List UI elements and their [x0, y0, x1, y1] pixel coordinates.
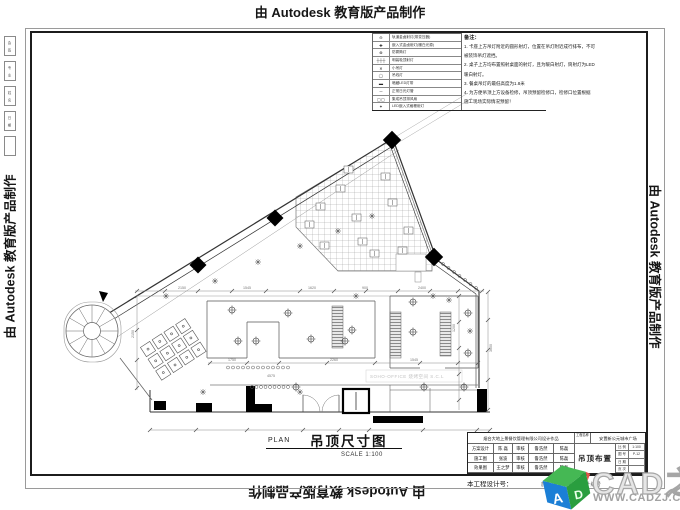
legend-symbol: ▬ [373, 80, 390, 87]
lighting-legend-table: ⊖轨道金卤射灯(带变压器)✚嵌入式金卤射灯(暖白光源)⊗防雾筒灯┼┼┼明装吸顶射… [372, 33, 462, 110]
legend-row: ⊖轨道金卤射灯(带变压器) [373, 34, 461, 42]
legend-label: 轨道金卤射灯(带变压器) [390, 34, 461, 41]
legend-row: ▢▢集成吊顶排风扇 [373, 96, 461, 104]
notes-line: 被装饰吊灯遮挡。 [464, 51, 546, 60]
cadzj-logo-icon: A D [536, 458, 598, 510]
notes-line: 2. 桌子上方均布置照射桌面的射灯，且为暖白射灯，筒射灯为LED [464, 60, 546, 69]
legend-symbol: ─ [373, 88, 390, 95]
legend-row: ◯吊线灯 [373, 72, 461, 80]
legend-symbol: ▢▢ [373, 96, 390, 103]
title-block-company: 烟台大地上景餐饮管理有限公司设计作品 [468, 433, 575, 444]
title-block-cell: 效果图 [468, 463, 494, 473]
legend-symbol: ✦ [373, 103, 390, 110]
signature-strip-cell: 日 期 [4, 111, 16, 131]
notes-line: 施工现场实际情况预留！ [464, 97, 546, 106]
legend-row: ✕小吊灯 [373, 65, 461, 73]
title-block-cell: 鲁浩然 [529, 444, 554, 454]
plan-title: 吊顶尺寸图 [310, 430, 388, 450]
legend-underline [372, 110, 546, 111]
cad-sheet-page: 由 Autodesk 教育版产品制作 由 Autodesk 教育版产品制作 由 … [0, 0, 680, 510]
legend-row: ⊗防雾筒灯 [373, 49, 461, 57]
legend-label: 暗藏LED灯带 [390, 80, 461, 87]
legend-symbol: ⊗ [373, 49, 390, 56]
plan-scale: SCALE 1:100 [341, 452, 383, 458]
meta-value: 1:100 [629, 444, 645, 451]
project-name-label: 工程名称 [575, 433, 591, 444]
legend-row: ─正常日光灯管 [373, 88, 461, 96]
legend-label: 嵌入式金卤射灯(暖白光源) [390, 42, 461, 49]
title-block-cell: 审核 [513, 444, 529, 454]
title-block-row: 施工图张波审核鲁浩然陈磊 [468, 454, 575, 464]
legend-row: ▬暗藏LED灯带 [373, 80, 461, 88]
title-block-cell: 陈磊 [554, 444, 575, 454]
signature-strip-cell: 姓 名 [4, 86, 16, 106]
notes-line: 3. 餐桌吊灯的最低高度为1.8米 [464, 79, 546, 88]
plan-title-rule [266, 448, 402, 449]
legend-label: 正常日光灯管 [390, 88, 461, 95]
notes-title: 备注： [464, 34, 546, 41]
signature-strip-cell [4, 136, 16, 156]
title-block-cell: 方案设计 [468, 444, 494, 454]
signature-strip: 会 签专 业姓 名日 期 [4, 36, 16, 161]
title-block-cell: 陈 磊 [494, 444, 513, 454]
notes-block: 备注： 1. 卡座上方吊灯附近的圆形射灯，位置在吊灯附近成行排布，不可被装饰吊灯… [464, 34, 546, 106]
cadzj-url-text: WWW.CADZJ.COM [593, 492, 680, 504]
edu-banner-top: 由 Autodesk 教育版产品制作 [0, 2, 680, 21]
legend-symbol: ✚ [373, 42, 390, 49]
legend-row: ┼┼┼明装吸顶射灯 [373, 57, 461, 65]
title-block-cell: 王之梦 [494, 463, 513, 473]
title-block-cell: 张波 [494, 454, 513, 464]
legend-label: 明装吸顶射灯 [390, 57, 461, 64]
legend-label: LED嵌入式格栅射灯 [390, 103, 461, 110]
title-block-cell: 施工图 [468, 454, 494, 464]
legend-row: ✚嵌入式金卤射灯(暖白光源) [373, 42, 461, 50]
title-block-meta-row: 比 例1:100 [616, 444, 645, 451]
meta-key: 比 例 [616, 444, 629, 451]
sheet-inner-frame [30, 31, 648, 476]
title-block-cell: 审核 [513, 454, 529, 464]
signature-strip-cell: 专 业 [4, 61, 16, 81]
title-block-cell: 审核 [513, 463, 529, 473]
legend-label: 防雾筒灯 [390, 49, 461, 56]
notes-line: 4. 为方便吊顶上方设备检修，吊顶预留检修口，检修口位置根据 [464, 88, 546, 97]
legend-symbol: ⊖ [373, 34, 390, 41]
signature-strip-cell: 会 签 [4, 36, 16, 56]
legend-symbol: ◯ [373, 72, 390, 79]
legend-label: 小吊灯 [390, 65, 461, 72]
legend-label: 集成吊顶排风扇 [390, 96, 461, 103]
legend-label: 吊线灯 [390, 72, 461, 79]
title-block-cell: 鲁浩然 [529, 454, 554, 464]
design-number-label: 本工程设计号： [467, 478, 513, 488]
notes-line: 暖白射灯。 [464, 70, 546, 79]
project-name: 安置新公元城市广场 [591, 433, 645, 444]
legend-symbol: ┼┼┼ [373, 57, 390, 64]
plan-label: PLAN [268, 437, 290, 444]
edu-banner-left: 由 Autodesk 教育版产品制作 [0, 132, 19, 382]
legend-symbol: ✕ [373, 65, 390, 72]
notes-line: 1. 卡座上方吊灯附近的圆形射灯，位置在吊灯附近成行排布，不可 [464, 42, 546, 51]
title-block-row: 方案设计陈 磊审核鲁浩然陈磊 [468, 444, 575, 454]
